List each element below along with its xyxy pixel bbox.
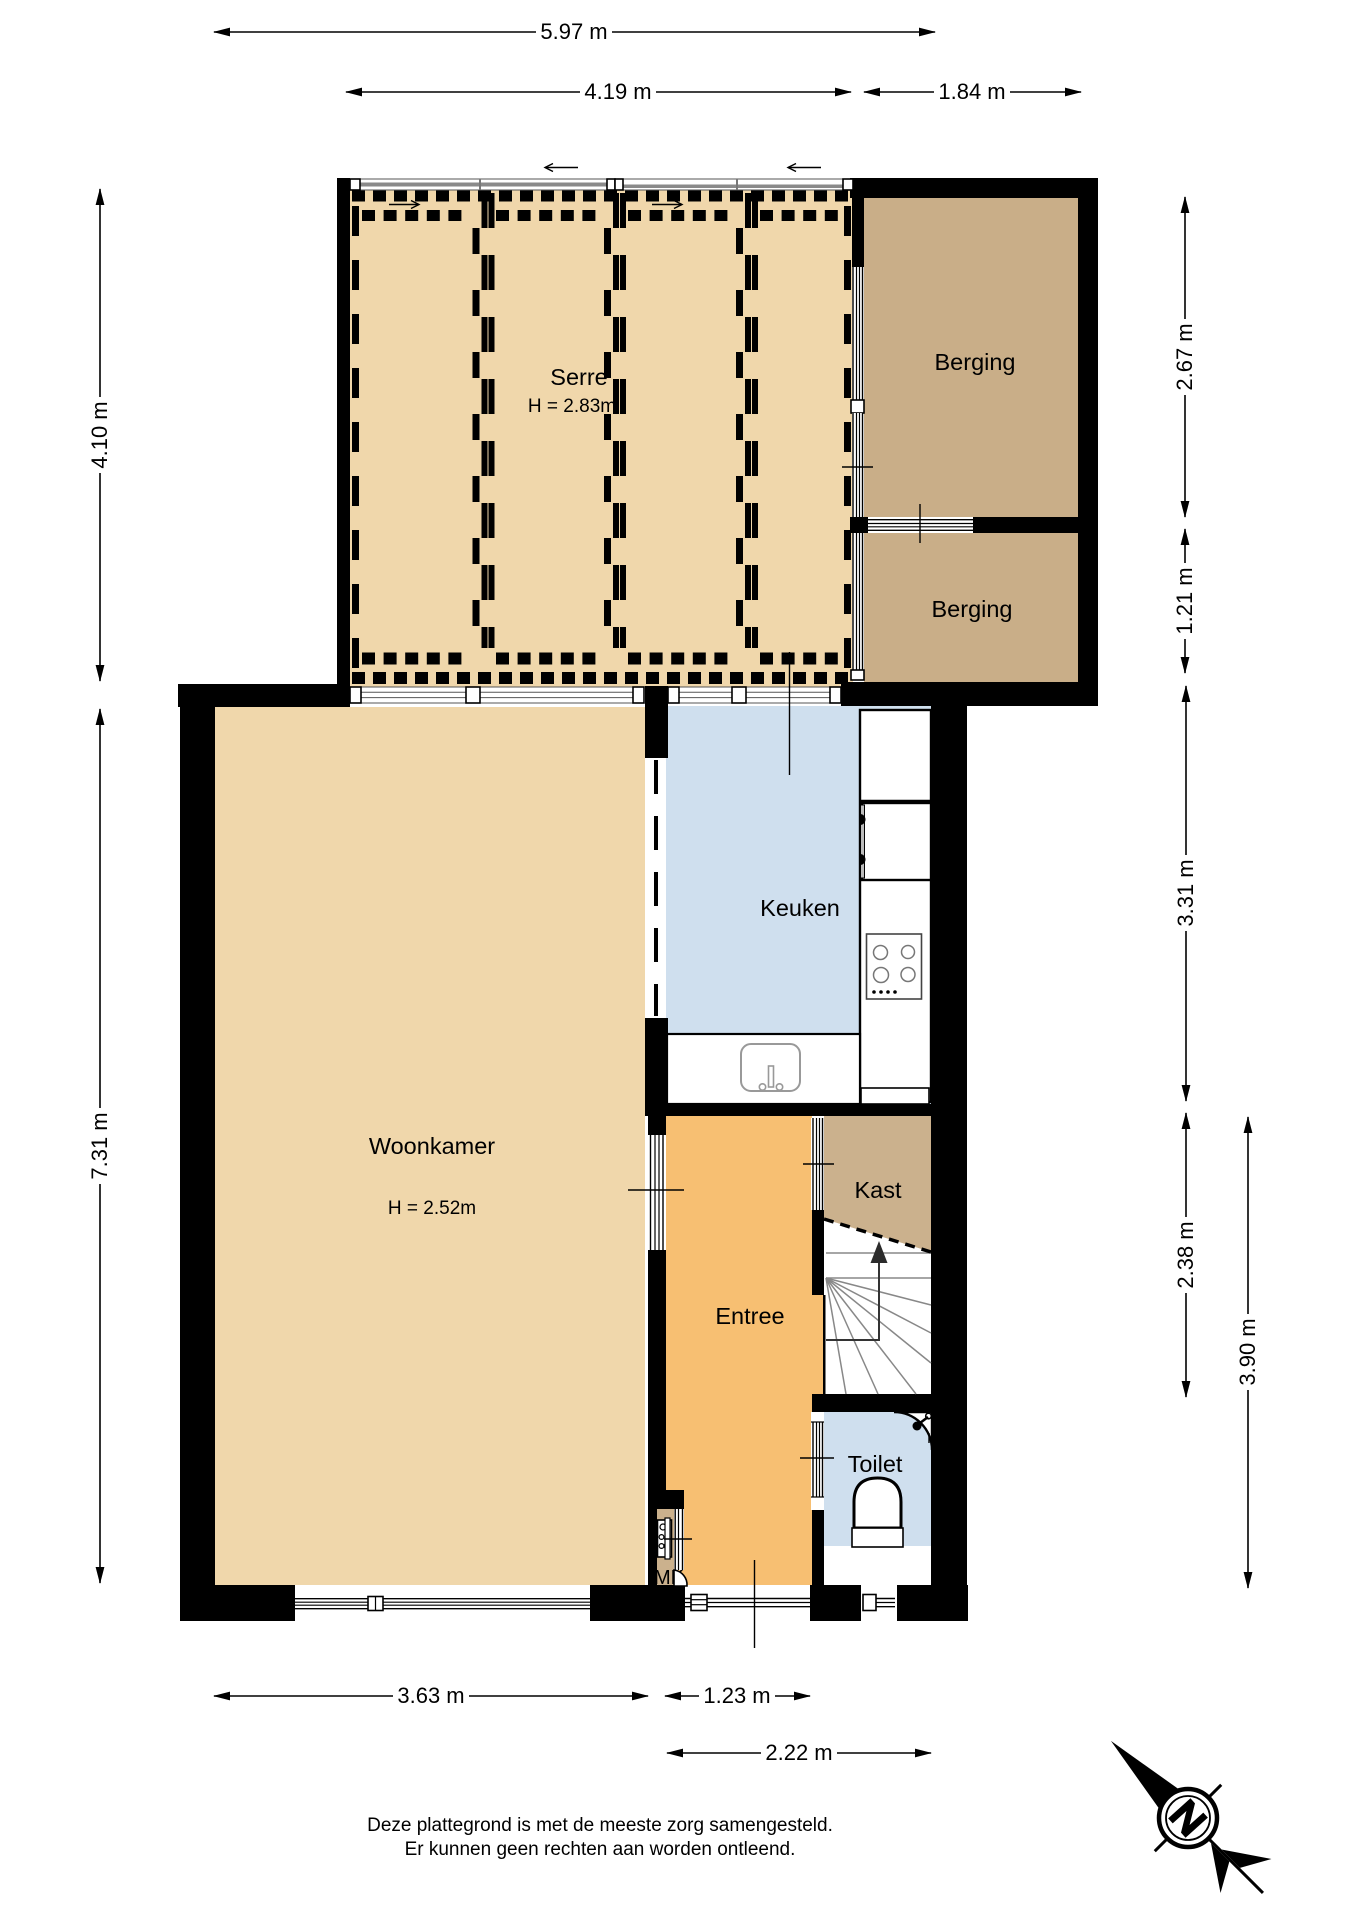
svg-text:7.31 m: 7.31 m [87,1112,112,1179]
svg-text:Berging: Berging [932,596,1013,622]
svg-text:Serre: Serre [550,364,607,390]
svg-text:1.84 m: 1.84 m [938,79,1005,104]
svg-text:Berging: Berging [935,349,1016,375]
svg-text:5.97 m: 5.97 m [540,19,607,44]
svg-text:1.23 m: 1.23 m [703,1683,770,1708]
svg-text:4.10 m: 4.10 m [87,401,112,468]
svg-text:3.31 m: 3.31 m [1173,859,1198,926]
svg-text:Er kunnen geen rechten aan wor: Er kunnen geen rechten aan worden ontlee… [405,1839,796,1860]
svg-text:Entree: Entree [715,1303,784,1329]
svg-text:3.90 m: 3.90 m [1235,1318,1260,1385]
svg-text:2.38 m: 2.38 m [1173,1221,1198,1288]
svg-text:Woonkamer: Woonkamer [369,1133,495,1159]
svg-text:3.63 m: 3.63 m [397,1683,464,1708]
svg-text:2.22 m: 2.22 m [765,1740,832,1765]
svg-text:H = 2.83m: H = 2.83m [528,396,616,417]
svg-text:2.67 m: 2.67 m [1172,323,1197,390]
svg-text:4.19 m: 4.19 m [584,79,651,104]
svg-text:Deze plattegrond is met de mee: Deze plattegrond is met de meeste zorg s… [367,1815,833,1836]
svg-text:Keuken: Keuken [760,895,840,921]
svg-text:Toilet: Toilet [848,1451,903,1477]
svg-text:1.21 m: 1.21 m [1172,567,1197,634]
svg-text:H = 2.52m: H = 2.52m [388,1198,476,1219]
svg-text:Kast: Kast [854,1177,901,1203]
